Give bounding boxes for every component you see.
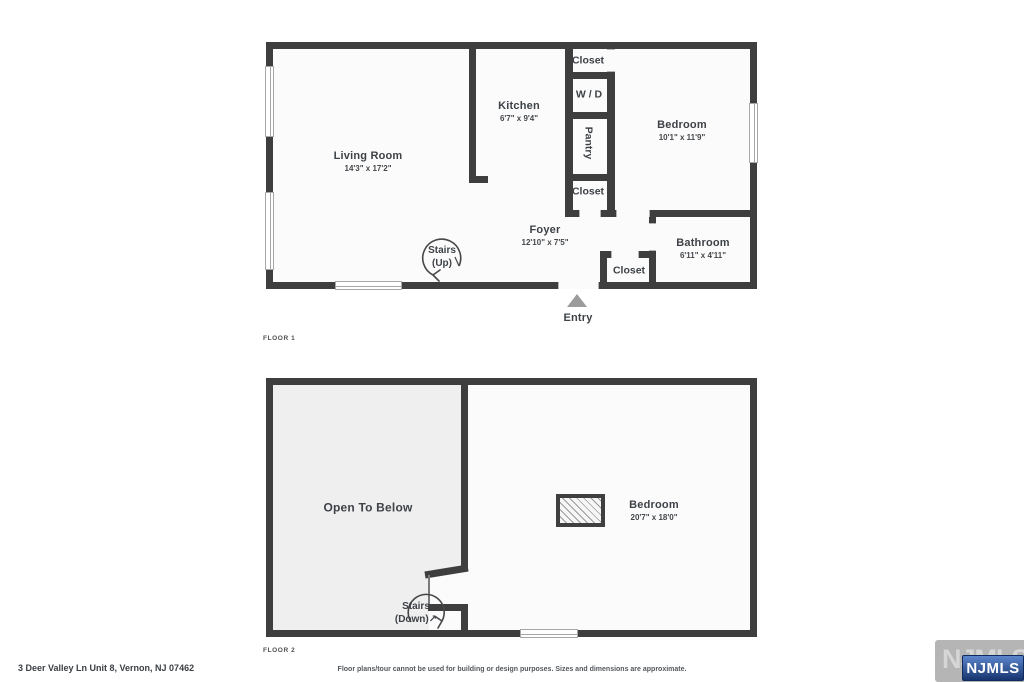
window — [520, 629, 578, 638]
entry-arrow-icon — [567, 294, 587, 307]
closet-foyer-label: Closet — [613, 264, 645, 277]
pantry-label: Pantry — [581, 127, 594, 160]
wall — [266, 630, 520, 637]
entry-text: Entry — [563, 312, 592, 326]
disclaimer-text: Floor plans/tour cannot be used for buil… — [338, 666, 687, 673]
closet-mid-label: Closet — [572, 185, 604, 198]
wall — [650, 210, 757, 217]
open-to-below-label: Open To Below — [323, 501, 412, 516]
room-dims: 14'3" x 17'2" — [334, 164, 403, 174]
stairs-line2: (Down) — [395, 614, 429, 625]
stairs-line1: Stairs — [428, 245, 456, 256]
wall — [565, 112, 615, 119]
wall — [565, 72, 615, 79]
foyer-label: Foyer 12'10" x 7'5" — [522, 224, 569, 248]
room-dims: 10'1" x 11'9" — [657, 133, 707, 143]
stairs-line1: Stairs — [402, 601, 430, 612]
room-name: Living Room — [334, 150, 403, 164]
closet-top-label: Closet — [572, 54, 604, 67]
kitchen-label: Kitchen 6'7" x 9'4" — [498, 100, 540, 124]
wall — [565, 210, 579, 217]
wall — [266, 378, 273, 637]
living-room-label: Living Room 14'3" x 17'2" — [334, 150, 403, 174]
window — [335, 281, 402, 290]
stairs-down-label: Stairs (Down)↗ — [395, 600, 437, 626]
wall — [607, 72, 615, 217]
stairs-up-label: Stairs (Up) — [428, 244, 456, 270]
entry-label: Entry — [563, 312, 592, 326]
window — [265, 66, 274, 137]
room-name: Kitchen — [498, 100, 540, 114]
bedroom2-label: Bedroom 20'7" x 18'0" — [629, 499, 679, 523]
bathroom-label: Bathroom 6'11" x 4'11" — [676, 237, 730, 261]
wall — [266, 42, 757, 49]
floor2-tag: FLOOR 2 — [263, 647, 295, 654]
wall — [750, 42, 757, 289]
stairs-line2: (Up) — [432, 258, 452, 269]
room-dims: 20'7" x 18'0" — [629, 513, 679, 523]
wall — [469, 42, 476, 183]
door-opening — [607, 49, 615, 72]
floor1-tag: FLOOR 1 — [263, 335, 295, 342]
room-dims: 12'10" x 7'5" — [522, 238, 569, 248]
njmls-logo: NJMLS — [962, 655, 1024, 681]
floor-plan-page: Living Room 14'3" x 17'2" Kitchen 6'7" x… — [0, 0, 1024, 682]
room-name: Open To Below — [323, 501, 412, 516]
room-dims: 6'7" x 9'4" — [498, 114, 540, 124]
room-name: Closet — [572, 54, 604, 67]
door-opening — [616, 210, 650, 217]
wall — [639, 251, 656, 258]
room-name: Bedroom — [657, 119, 707, 133]
wall — [565, 174, 615, 181]
hatched-chase-box — [556, 494, 605, 527]
wd-label: W / D — [576, 88, 602, 101]
stairs-arrow-glyph: ↗ — [429, 614, 437, 625]
property-address: 3 Deer Valley Ln Unit 8, Vernon, NJ 0746… — [18, 663, 194, 673]
entry-door-opening — [558, 282, 599, 289]
room-name: Pantry — [581, 127, 594, 160]
room-name: Bathroom — [676, 237, 730, 251]
wall — [600, 251, 611, 258]
window — [749, 103, 758, 163]
window — [265, 192, 274, 270]
wall — [461, 378, 468, 568]
door-opening — [579, 210, 601, 217]
door-opening — [649, 223, 656, 251]
room-name: Closet — [572, 185, 604, 198]
wall — [469, 176, 488, 183]
wall — [601, 210, 616, 217]
wall — [461, 604, 468, 637]
room-dims: 6'11" x 4'11" — [676, 251, 730, 261]
door-opening — [611, 251, 639, 258]
wall — [750, 378, 757, 637]
wall — [266, 378, 757, 385]
njmls-logo-text: NJMLS — [966, 660, 1019, 677]
room-name: W / D — [576, 88, 602, 101]
bedroom1-label: Bedroom 10'1" x 11'9" — [657, 119, 707, 143]
room-name: Foyer — [522, 224, 569, 238]
wall — [578, 630, 757, 637]
room-name: Closet — [613, 264, 645, 277]
room-name: Bedroom — [629, 499, 679, 513]
